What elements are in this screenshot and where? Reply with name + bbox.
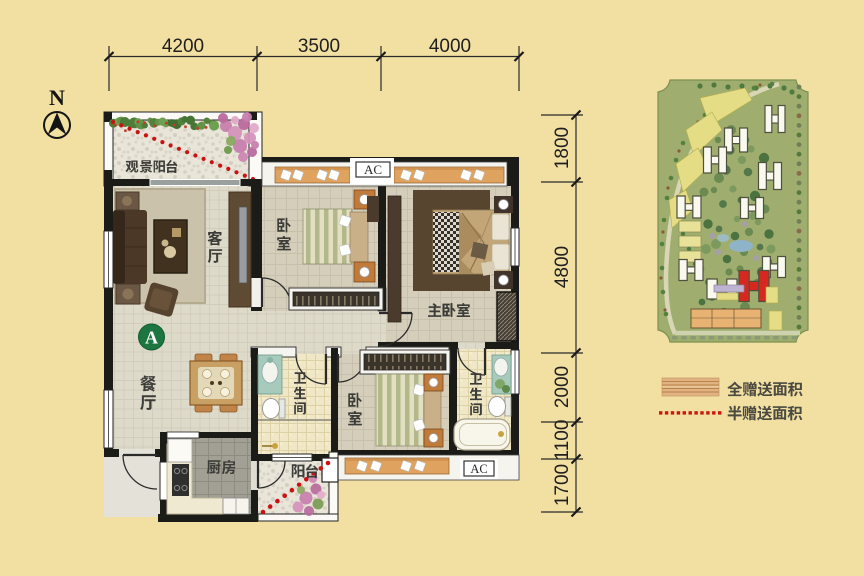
svg-text:1800: 1800 xyxy=(552,127,573,169)
svg-text:4200: 4200 xyxy=(162,36,204,57)
svg-text:2000: 2000 xyxy=(552,366,573,408)
svg-text:1100: 1100 xyxy=(552,420,573,461)
svg-text:AC: AC xyxy=(470,462,487,476)
svg-text:4000: 4000 xyxy=(429,36,471,57)
svg-text:1700: 1700 xyxy=(552,464,573,506)
svg-text:A: A xyxy=(145,328,158,348)
svg-text:4800: 4800 xyxy=(552,246,573,288)
svg-text:AC: AC xyxy=(364,162,382,177)
svg-text:N: N xyxy=(49,85,65,110)
svg-text:3500: 3500 xyxy=(298,36,340,57)
